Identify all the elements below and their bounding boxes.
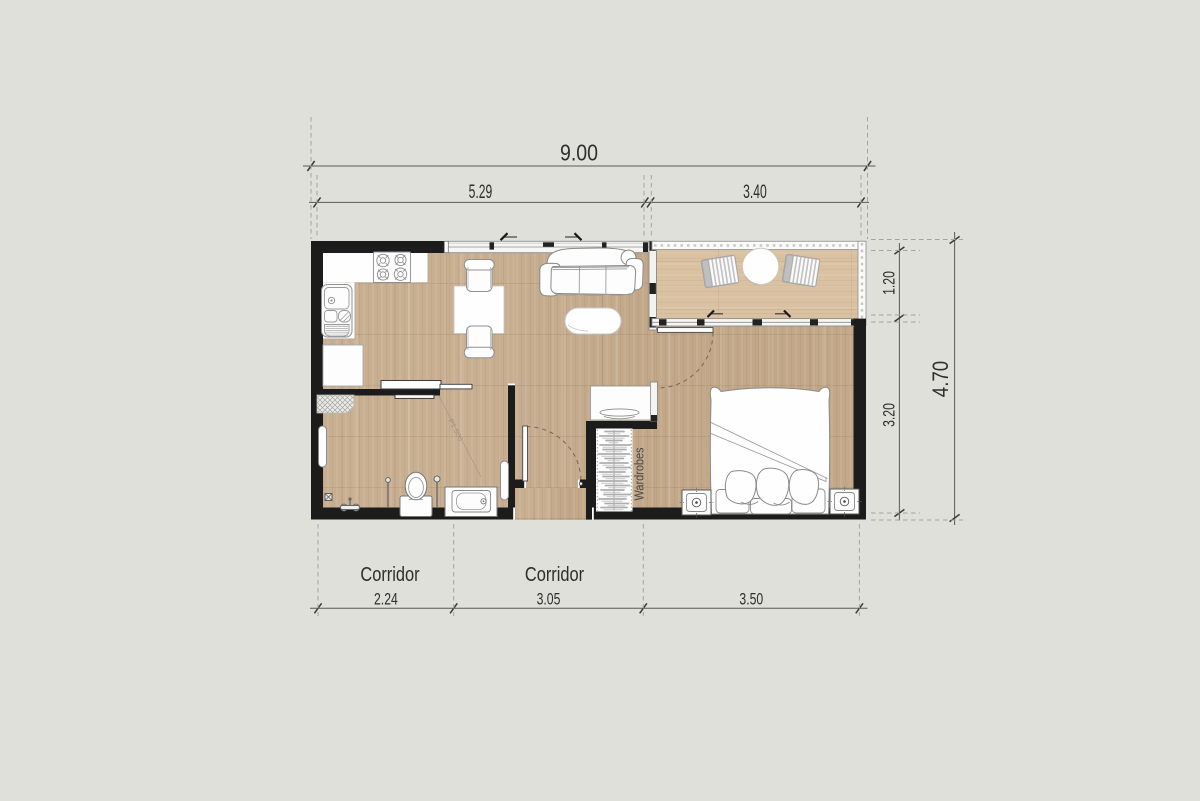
svg-text:1.20: 1.20 bbox=[881, 271, 899, 295]
svg-text:3.05: 3.05 bbox=[537, 591, 561, 609]
svg-text:3.40: 3.40 bbox=[743, 183, 767, 203]
svg-text:3.20: 3.20 bbox=[881, 403, 899, 427]
svg-text:3.50: 3.50 bbox=[739, 591, 763, 609]
svg-text:4.70: 4.70 bbox=[930, 361, 954, 397]
svg-text:9.00: 9.00 bbox=[560, 140, 598, 166]
svg-text:P1.500: P1.500 bbox=[446, 417, 465, 442]
svg-text:2.24: 2.24 bbox=[374, 591, 398, 609]
svg-text:Corridor: Corridor bbox=[360, 562, 419, 585]
svg-text:Corridor: Corridor bbox=[525, 562, 584, 585]
svg-text:5.29: 5.29 bbox=[469, 183, 493, 203]
svg-text:Wardrobes: Wardrobes bbox=[632, 448, 647, 501]
